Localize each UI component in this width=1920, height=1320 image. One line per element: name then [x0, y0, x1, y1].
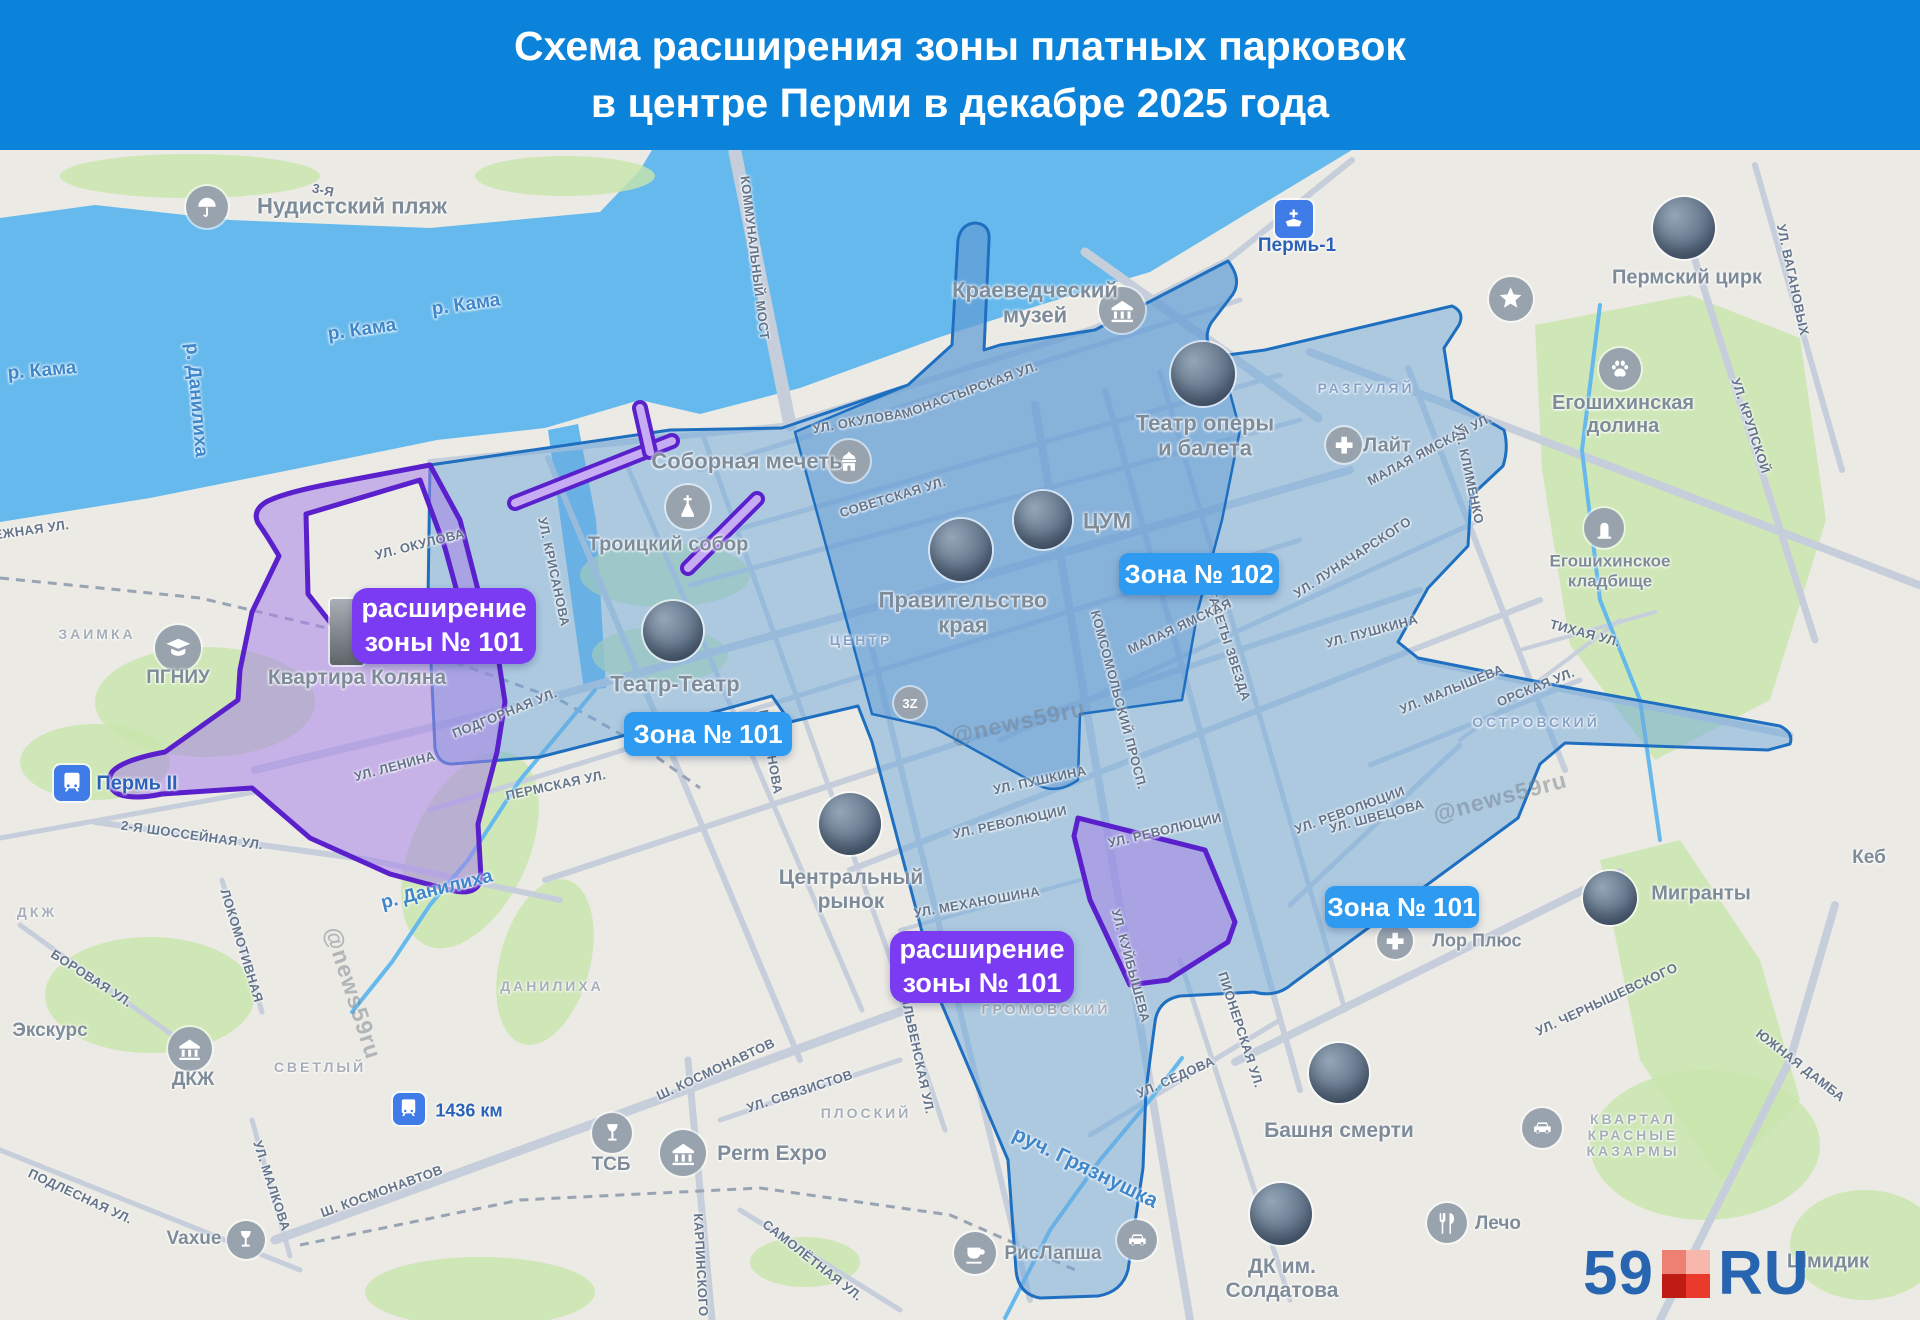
park-green: [475, 156, 655, 196]
page-title-line1: Схема расширения зоны платных парковок: [514, 21, 1406, 72]
header-banner: Схема расширения зоны платных парковок в…: [0, 0, 1920, 150]
logo-red-squares-icon: [1662, 1250, 1710, 1298]
logo-ru-text: RU: [1718, 1238, 1810, 1309]
logo-59-text: 59: [1583, 1238, 1654, 1309]
city-map: [0, 0, 1920, 1320]
park-green: [60, 154, 320, 198]
park-green: [750, 1237, 860, 1287]
parking-zones-infographic: 3Z УЛ. ОКУЛОВАУЛ. ОКУЛОВАМОНАСТЫРСКАЯ УЛ…: [0, 0, 1920, 1320]
page-title-line2: в центре Перми в декабре 2025 года: [591, 78, 1329, 129]
logo-59ru: 59 RU: [1583, 1238, 1810, 1309]
park-green: [45, 937, 255, 1053]
